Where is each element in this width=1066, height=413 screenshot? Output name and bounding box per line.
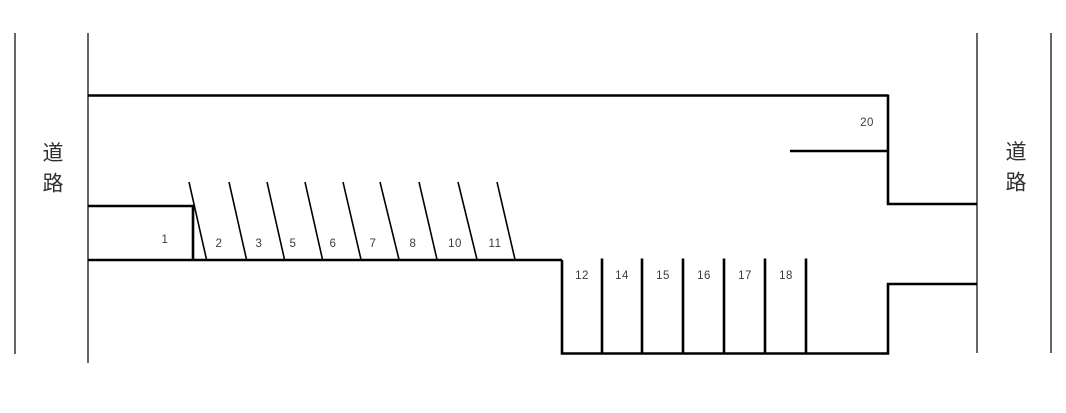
space-label-20: 20 — [860, 117, 874, 129]
angled-divider — [229, 182, 247, 260]
space-label-18: 18 — [779, 270, 793, 282]
angled-divider — [343, 182, 361, 260]
angled-divider — [419, 182, 437, 260]
angled-divider — [305, 182, 323, 260]
parking-map-lines — [0, 0, 1066, 413]
angled-divider — [189, 182, 207, 260]
space-label-15: 15 — [656, 270, 670, 282]
space-label-14: 14 — [615, 270, 629, 282]
space-label-12: 12 — [575, 270, 589, 282]
space-label-6: 6 — [330, 238, 337, 250]
space-label-17: 17 — [738, 270, 752, 282]
space-label-1: 1 — [162, 234, 169, 246]
space-label-16: 16 — [697, 270, 711, 282]
space-label-7: 7 — [370, 238, 377, 250]
space-1-outline — [88, 206, 193, 260]
right-road-label: 道路 — [999, 141, 1029, 202]
space-label-11: 11 — [489, 238, 502, 250]
left-road-label: 道路 — [36, 142, 66, 203]
space-label-8: 8 — [410, 238, 417, 250]
space-label-10: 10 — [448, 238, 462, 250]
space-label-2: 2 — [216, 238, 223, 250]
space-label-3: 3 — [256, 238, 263, 250]
parking-map: 道路 道路 1 2 3 5 6 7 8 10 11 12 14 15 16 17… — [0, 0, 1066, 413]
angled-divider — [380, 182, 399, 260]
angled-divider — [267, 182, 285, 260]
space-label-5: 5 — [290, 238, 297, 250]
lot-east-upper-boundary-line — [888, 95, 977, 205]
